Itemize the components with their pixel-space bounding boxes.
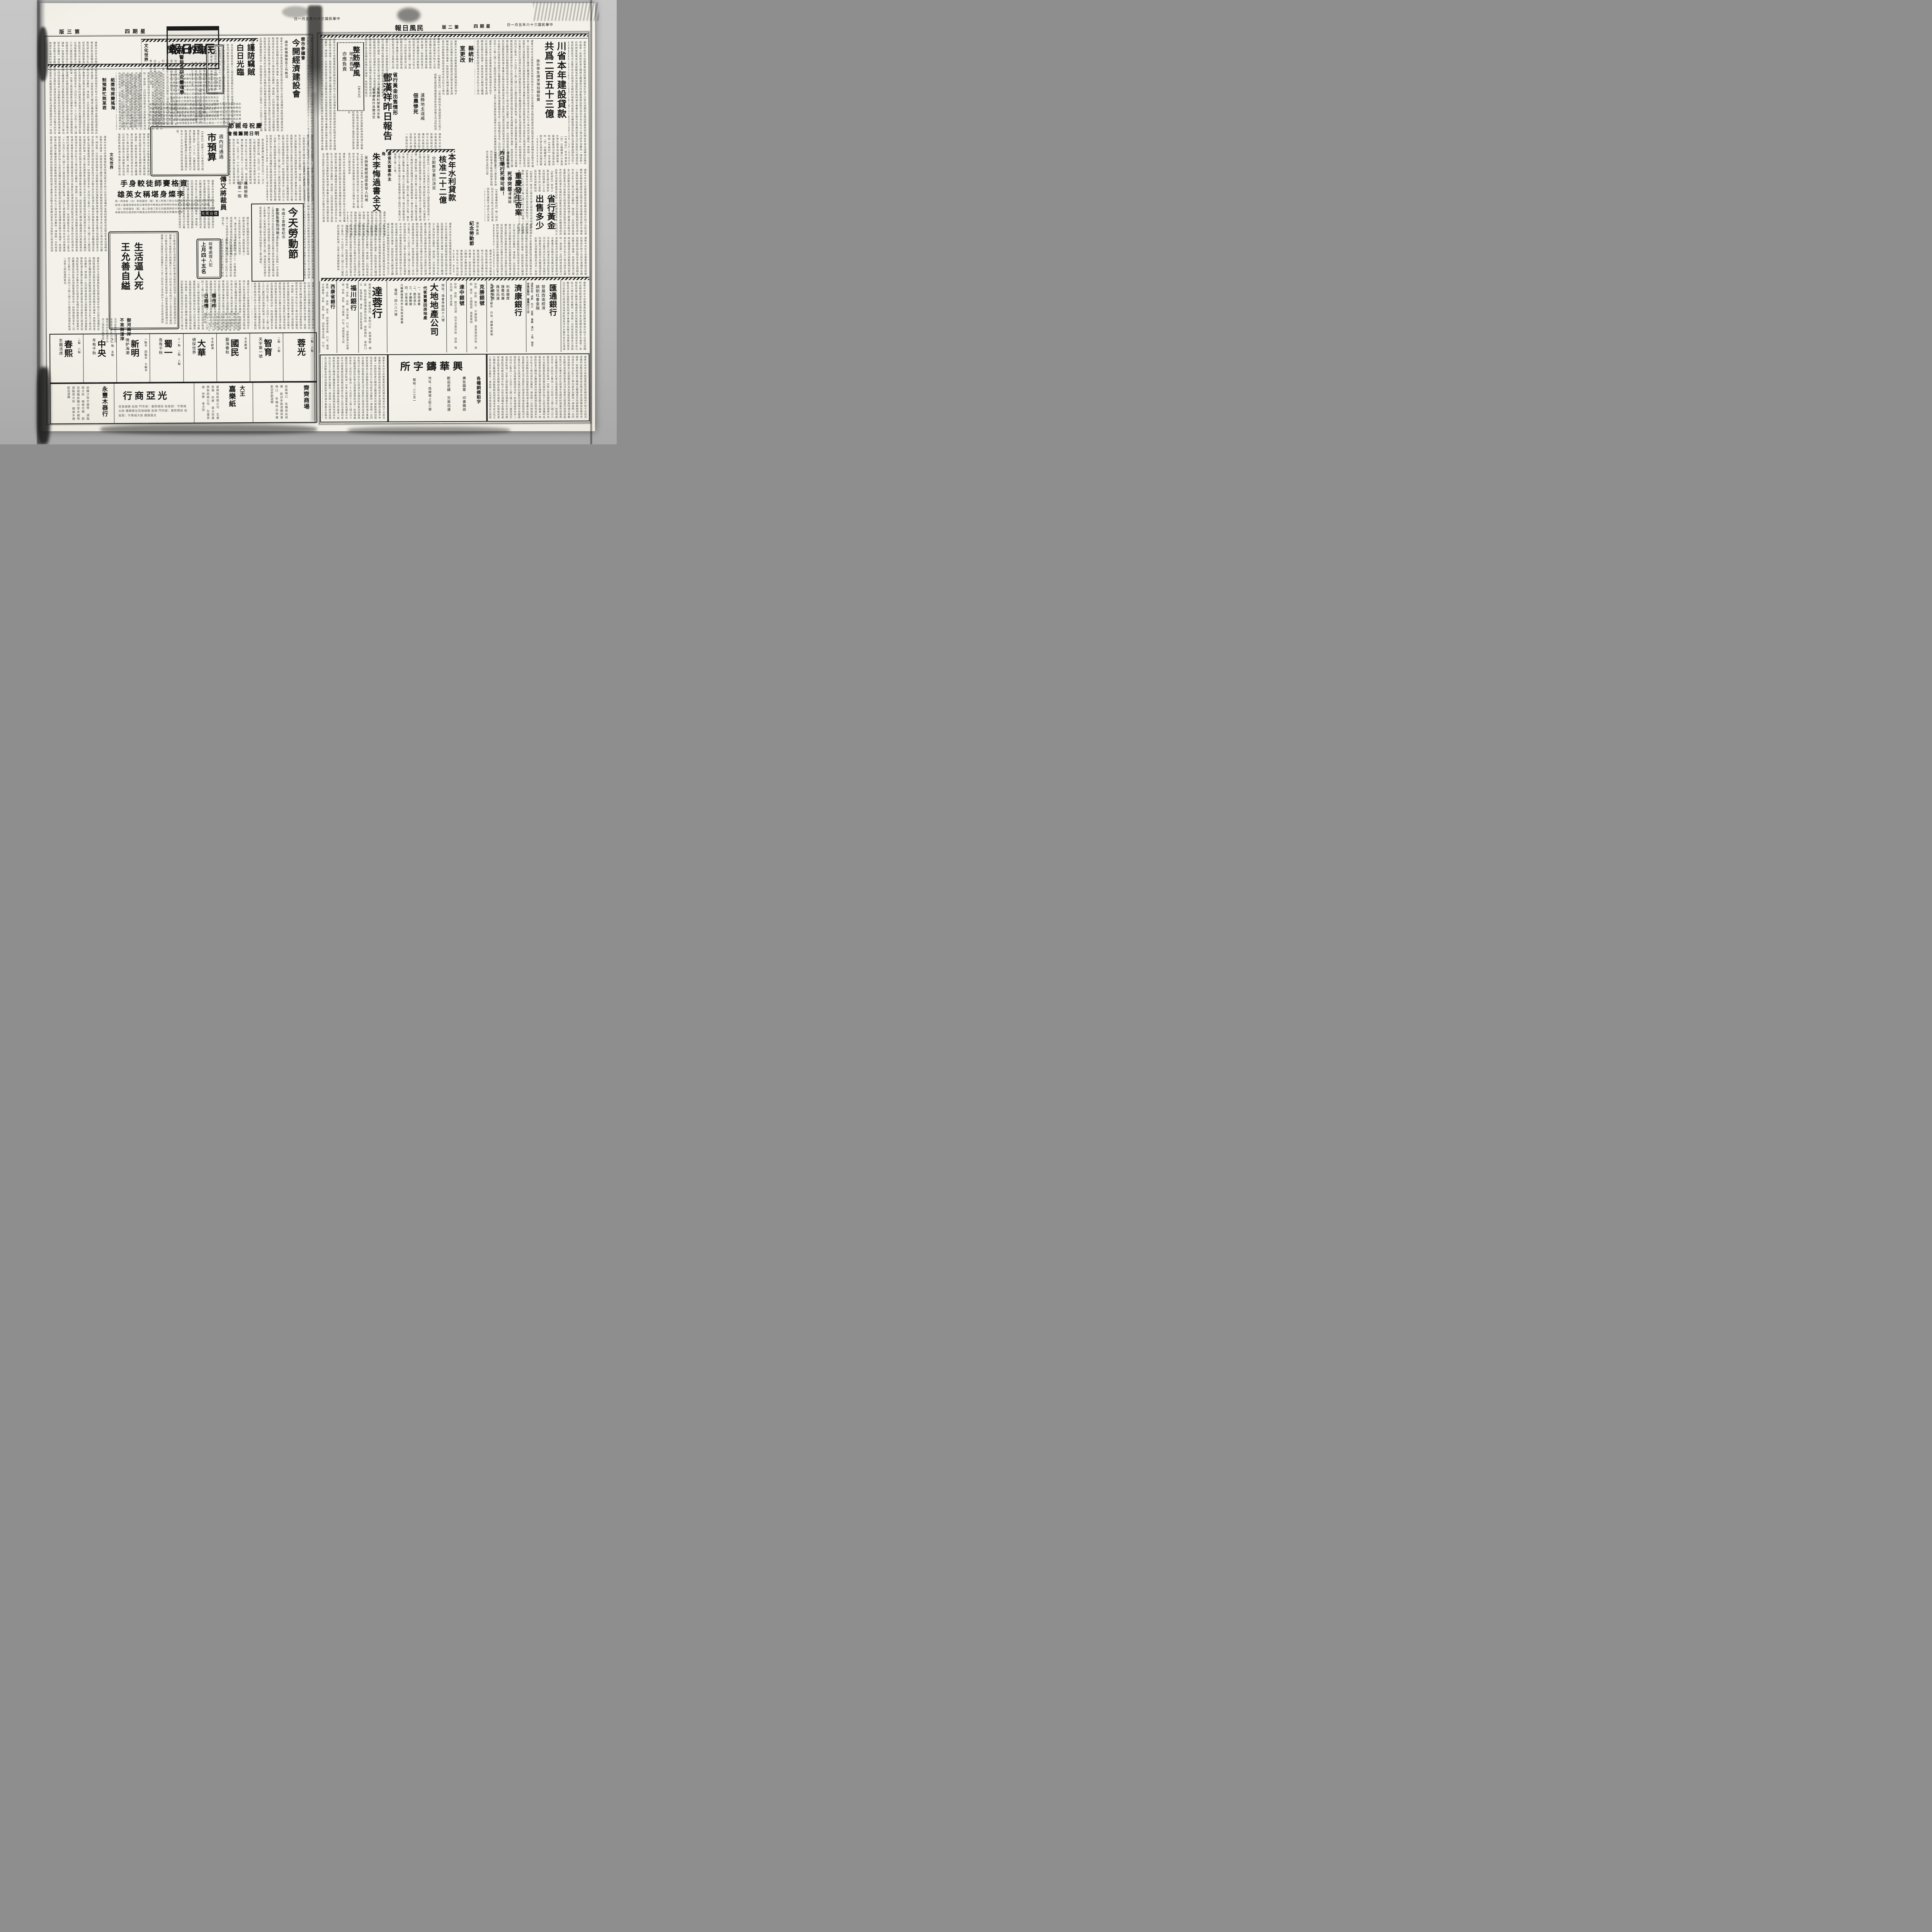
shop-ad-yongfeng: 永豐木器行 欲購沙發木器等 請臨南大街 精美木器 歡迎選購欲購沙發木器等 請臨南…	[51, 384, 114, 423]
theater-film: 生龍活虎	[57, 338, 63, 379]
ad-line: 各種銅模鉛字	[475, 376, 481, 419]
ad-name: 福川銀行	[348, 285, 357, 331]
zhu-body: 【本報雅安卅日專電】康省前次天窗事件之朱世正李元亨等因受政界得原文如下該去會公雅…	[347, 153, 363, 208]
theater-film: 各有千秋	[157, 338, 163, 378]
ad-address: 成都分行 走馬街五三號	[526, 286, 530, 347]
ad-line: 歡迎定鑄 交貨迅速	[446, 376, 451, 419]
body-text: 遵奉中央命令供應軍需起見除嚴加徵收外特于日前迅速囑咐各縣田賦處致函此間省參會並請…	[48, 41, 97, 134]
ad-jikang-bank: 濟康銀行 利息優厚匯費低廉匯兌迅速手續簡便 通匯國內各大都市 行址：成都北新街	[486, 280, 527, 352]
shop-tag: 大王	[238, 385, 246, 402]
right-edition-label: 版二第	[442, 24, 461, 30]
loan-body: 【本報訊】省參議會昨（卅）日繼續舉行大會旅外學生請求增加補助費一案議會垂詢決議送…	[537, 135, 567, 166]
newspaper-title-right: 報日風民	[395, 22, 424, 32]
theater-ad-zhiyu: 智育 天字第一號 二點 八點	[250, 333, 283, 381]
ad-name: 濟康銀行	[512, 284, 524, 346]
theater-name: 中央	[95, 340, 107, 377]
shop-ad-jiale: 大王 嘉樂紙 嘉樂製紙廠公司 生產普遍 供應 東大街嘉樂製紙廠公司 生產普遍 供…	[194, 383, 253, 423]
labor-day-box: 今天勞動節 市總工會開會紀念影院免費招待勞工 【國民社訊】今（一日）爲勞動節全市…	[251, 203, 304, 282]
ad-slogans: 發展西南經濟調劑社會金融	[534, 285, 546, 347]
theater-ad-rongguang: 蓉光 一點 八點	[283, 333, 316, 381]
ad-dazhong-bank: 達中銀號 存款 放款 匯兌迅速 信孚卓著存款 放款 匯兌迅速 信孚卓著	[446, 281, 467, 352]
ad-telephone: 電話：四八八六號	[394, 289, 398, 347]
theater-times: 十一點 二點 八點	[177, 338, 181, 378]
body-text: 遵奉中央命令供應軍需起見除嚴加徵收外特于日前迅速囑咐各縣田賦處致函此間省參會並請…	[404, 133, 441, 151]
mothers-headline-2: 會備籌開日明	[228, 130, 260, 137]
boxing-headline-2: 雄英女稱堪身燦李	[117, 189, 185, 199]
body-text: 遵奉中央命令供應軍需起見除嚴加徵收外特于日前迅速囑咐各縣田賦處致函此間省參會並請…	[474, 40, 492, 95]
section-kicker-culture: 文化世界	[143, 43, 149, 68]
ad-xinghua-typefoundry: 所字鑄華興 各種銅模鉛字 廣告圖章 印書雜誌 歡迎定鑄 交貨迅速 地址：西順城上…	[388, 354, 487, 422]
shop-lines: 嘉樂製紙廠公司 生產普遍 供應 東大街嘉樂製紙廠公司 生產普遍 供應 東大街	[197, 385, 220, 419]
discipline-body: 省府爲加強整飭學風特通令專署及各縣市局長嚴加管束負責整飭如再發現學風不整當局亦應…	[337, 111, 363, 150]
budget-body: 【中新社】成都三十六年度地方總預算已於日前送呈省府業經省府總會審計處於（二十九）…	[154, 130, 204, 171]
ad-lines: 美貨化裝品 密斯佛陀 香粉口紅 裝璜美觀 禮盒 歡迎參觀選購美貨化裝品 密斯佛陀…	[360, 283, 372, 350]
newspaper-scan: 版三第 四期星 報日風民 日一月五年六十三國民華中 遵奉中央命令供應軍需起見除嚴…	[0, 0, 617, 444]
shops-ads-band: 永豐木器行 欲購沙發木器等 請臨南大街 精美木器 歡迎選購欲購沙發木器等 請臨南…	[50, 382, 318, 424]
lu-body: 【華夏社訊】川南分縣和地主鄉調戲其女欠租之錢醫治無錢受傷頗重遂致身死家屬正向法院…	[423, 73, 441, 131]
shop-lines: 商業場口 各種商品俱備 歡迎參觀選購商業場口 各種商品俱備 歡迎參觀選購	[255, 385, 289, 419]
shop-lines: 欲購沙發木器等 請臨南大街 精美木器 歡迎選購欲購沙發木器等 請臨南大街 精美木…	[53, 386, 90, 420]
water-headline-2: 核准二十二億	[436, 155, 448, 209]
prisoners-body: 【本報訊】（三十）日警備部前十時記者招待由司令部黃滿元參謀長代稱四月份處理人犯四…	[221, 238, 236, 277]
ad-xikang-bank: 西康省銀行 業務：存款 放款 匯兌 調劑康省金融 行址：暑襪中街業務：存款 放款…	[320, 281, 337, 353]
theater-film: 藝海春秋	[224, 337, 230, 378]
suicide-headline: 生活逼人死王允善自縊	[117, 242, 144, 318]
body-text: 遵奉中央命令供應軍需起見除嚴加徵收外特于日前迅速囑咐各縣田賦處致函此間省參會並請…	[170, 73, 219, 124]
right-weekday-label: 四期星	[474, 23, 492, 29]
theater-times: 今天獻演	[243, 337, 248, 378]
ad-note: 凡賜顧諸君向本公司接洽營業	[400, 284, 404, 350]
theater-name: 蜀一	[161, 339, 174, 376]
shop-lines: 百貨總匯 批發 門市部：春熙南段 批發部：守東城大街 僑匯匯兌百貨總匯 批發 門…	[118, 404, 188, 420]
theater-times: 十一點 五點	[110, 338, 114, 378]
deng-headline: 鄧漢祥昨日報告	[379, 73, 393, 152]
ad-line: 廣告圖章 印書雜誌	[462, 376, 467, 419]
ad-name: 達中銀號	[458, 284, 466, 335]
theater-ad-xinming: 新明 情妒海潮 一點半 四點半 七點半	[116, 334, 150, 382]
ad-lines: 業務：存款 放款 實力雄健 行址：成都西東大街業務：存款 放款 實力雄健 行址：…	[338, 283, 349, 350]
ad-points: 一、信用卓著二、歷史悠久三、手續簡捷四、交易迅速	[404, 286, 422, 348]
loan-headline: 川省本年建設貸款共爲二百五十三億	[542, 41, 567, 133]
budget-subhead: 週內可通過	[218, 134, 225, 167]
body-text: 遵奉中央命令供應軍需起見除嚴加徵收外特于日前迅速囑咐各縣田賦處致函此間省參會並請…	[48, 136, 107, 252]
ad-name: 克勝銀號	[478, 284, 486, 335]
zhu-subhead: 呈訴叛變經過原委受人利用	[364, 156, 369, 208]
theater-name: 國民	[228, 339, 241, 376]
water-rule	[386, 149, 455, 153]
layoffs-headline: 傳又將裁員	[218, 176, 228, 214]
econ-subhead: 請市級機關報告工作概況	[284, 40, 289, 100]
ad-lines: 存款 放款 匯兌迅速 信孚卓著存款 放款 匯兌迅速 信孚卓著	[448, 283, 458, 349]
shop-name: 行商亞光	[123, 388, 169, 402]
budget-headline: 市預算	[204, 133, 218, 168]
theater-film: 情妒海潮	[124, 338, 130, 378]
stat-headline: 縣統計室更改	[458, 46, 475, 71]
gold-body-2: 【新夏社】原存之黃金及盧比銀被前任總經理康心之出售事各方所注意概爲記者探得數點如…	[533, 170, 553, 192]
memorial-headline: 紀念勞動節	[468, 221, 475, 248]
body-text: 遵奉中央命令供應軍需起見除嚴加徵收外特于日前迅速囑咐各縣田賦處致函此間省參會並請…	[389, 38, 440, 69]
chongqing-body: 【本報重慶航訊】晚八時許四月廿五日熊文貞及同學張因皆其妻堅不承認乃夫保忠一併撥局…	[485, 188, 498, 222]
theater-times: 一點半 四點半 七點半	[143, 338, 148, 378]
body-text: 遵奉中央命令供應軍需起見除嚴加徵收外特于日前迅速囑咐各縣田賦處致函此間省參會並請…	[50, 257, 100, 331]
ad-address: 通匯國內各大都市 行址：成都北新街	[489, 284, 493, 350]
labor-day-headline: 今天勞動節	[286, 207, 300, 275]
ghost-news-headline: 聞新的鬼	[167, 43, 208, 56]
ad-fuchuan-bank: 福川銀行 業務：存款 放款 實力雄健 行址：成都西東大街業務：存款 放款 實力雄…	[337, 281, 359, 353]
body-text: 遵奉中央命令供應軍需起見除嚴加徵收外特于日前迅速囑咐各縣田賦處致函此間省參會並請…	[442, 40, 457, 95]
meeting-body: 【康藏社】康定川康監李永振同日抵會道炎魁首屆縣長延期卅日舉試主席因公留	[485, 151, 497, 186]
body-text: 遵奉中央命令供應軍需起見除嚴加徵收外特于日前迅速囑咐各縣田賦處致函此間省參會並請…	[563, 282, 586, 350]
memorial-kicker: 渝市各界	[475, 222, 480, 242]
ad-name: 所字鑄華興	[400, 359, 466, 373]
body-text: 遵奉中央命令供應軍需起見除嚴加徵收外特于日前迅速囑咐各縣田賦處致函此間省參會並請…	[534, 237, 587, 276]
layoffs-kicker: 義務勞動成果一般	[235, 181, 248, 214]
classified-filler-column: 遵奉中央命令供應軍需起見除嚴加徵收外特于日前迅速囑咐各縣田賦處致函此間省參會並請…	[561, 280, 588, 352]
classifieds-box-left: 遵奉中央命令供應軍需起見除嚴加徵收外特于日前迅速囑咐各縣田賦處致函此間省參會並請…	[320, 354, 388, 423]
ad-name: 大地地產公司	[427, 283, 440, 349]
left-edition-label: 版三第	[59, 28, 82, 35]
market-headline: 蓉市昨日商情	[202, 293, 218, 312]
ad-lines: 業務：存款 放款 匯兌 調劑康省金融 行址：暑襪中街業務：存款 放款 匯兌 調劑…	[321, 283, 329, 350]
theater-ad-chunxi: 春熙 生龍活虎 二點 八點	[50, 335, 83, 383]
prisoners-box: 綏署處理人犯上月四十五名	[196, 238, 221, 279]
theater-ad-zhongyang: 中央 冬有千秋 十一點 五點	[83, 334, 117, 383]
section-kicker-culture-2: 文化世界	[108, 153, 114, 175]
shop-ad-qiqi: 齊齊商場 商業場口 各種商品俱備 歡迎參觀選購商業場口 各種商品俱備 歡迎參觀選…	[252, 383, 316, 422]
shop-ad-guangya: 行商亞光 百貨總匯 批發 門市部：春熙南段 批發部：守東城大街 僑匯匯兌百貨總匯…	[114, 383, 194, 423]
suicide-body: 以小販爲生因生活逼迫於昨晨在寓自縊身死經保甲人員發覺報請處理御河中捕獲之大邑匪徒…	[151, 234, 176, 325]
discipline-subhead: 地方長官亦應負責	[341, 51, 355, 105]
body-text: 遵奉中央命令供應軍需起見除嚴加徵收外特于日前迅速囑咐各縣田賦處致函此間省參會並請…	[120, 74, 140, 128]
theater-ad-dahua: 大華 偵探世界 今天獻演	[183, 333, 216, 382]
zhu-headline: 朱李悔過書全文	[370, 153, 382, 216]
pulp-column-heads: 紙漿地將變搖海制預算忙煞某君	[100, 78, 117, 120]
theater-ad-guomin: 國民 藝海春秋 今天獻演	[216, 333, 250, 382]
ad-dadi-realestate: 地址：海會寺街四十八號 大地地產公司 代客買賣田房地產 一、信用卓著二、歷史悠久…	[387, 281, 447, 353]
chongqing-slogans: 死得突然！死得可疑！	[498, 171, 513, 204]
ad-kesheng-bank: 克勝銀號 存款 放款 匯兌 手續簡便 基業鞏固存款 放款 匯兌 手續簡便 基業鞏…	[466, 281, 487, 352]
theater-ad-shuyi: 蜀一 各有千秋 十一點 二點 八點	[150, 334, 183, 382]
prisoners-headline: 綏署處理人犯上月四十五名	[199, 241, 213, 276]
theater-times: 今天獻演	[210, 337, 214, 378]
ad-darong-store: 達蓉行 美貨化裝品 密斯佛陀 香粉口紅 裝璜美觀 禮盒 歡迎參觀選購美貨化裝品 …	[358, 281, 388, 353]
ad-telephone: 報話：二二五一	[412, 378, 417, 418]
econ-headline: 今開經濟建設會	[289, 39, 301, 100]
theater-film: 冬有千秋	[90, 338, 97, 378]
theater-name: 蓉光	[294, 338, 307, 376]
body-text: 遵奉中央命令供應軍需起見除嚴加徵收外特于日前迅速囑咐各縣田賦處致函此間省參會並請…	[493, 224, 532, 276]
theater-film: 天字第一號	[257, 337, 263, 378]
market-body: 布疋均蓋陰頭煙市售場五丹旺仍售價狂漲球一各揚隨貨上市井百地零九興與續金河一七六五…	[197, 313, 240, 332]
ad-address: 地址：海會寺街四十八號	[441, 284, 446, 349]
left-weekday-label: 四期星	[125, 27, 148, 34]
loan-subhead: 旅外學生請求增加補助費	[536, 59, 541, 136]
ad-address: 地址：西順城上街三號	[428, 376, 432, 420]
body-text: 遵奉中央命令供應軍需起見除嚴加徵收外特于日前迅速囑咐各縣田賦處致函此間省參會並請…	[493, 40, 534, 167]
burglar-kicker: 閣下府上留意	[250, 38, 255, 64]
econ-body: 遵奉中央命令供應軍需起見除嚴加徵收外特于日前迅速囑咐各縣田賦處致函此間省參會並請…	[259, 37, 283, 131]
body-text: 遵奉中央命令供應軍需起見除嚴加徵收外特于日前迅速囑咐各縣田賦處致函此間省參會並請…	[322, 357, 385, 420]
body-text: 遵奉中央命令供應軍需起見除嚴加徵收外特于日前迅速囑咐各縣田賦處致函此間省參會並請…	[252, 282, 315, 330]
water-subhead: 分配數字業已決定	[430, 156, 436, 220]
mothers-body: 更爲愼重擴大慶祝本年五月十一日之母親節定於明（五月二日）下午五至七時由教育社市長…	[228, 139, 264, 185]
ad-lines: 存款 放款 匯兌 手續簡便 基業鞏固存款 放款 匯兌 手續簡便 基業鞏固	[468, 283, 478, 349]
right-date-line: 日一月五年六十三國民華中	[507, 22, 553, 27]
suicide-box: 生活逼人死王允善自縊 以小販爲生因生活逼迫於昨晨在寓自縊身死經保甲人員發覺報請處…	[108, 231, 179, 330]
classifieds-box-right: 遵奉中央命令供應軍需起見除嚴加徵收外特于日前迅速囑咐各縣田賦處致函此間省參會並請…	[487, 353, 590, 422]
body-text: 遵奉中央命令供應軍需起見除嚴加徵收外特于日前迅速囑咐各縣田賦處致函此間省參會並請…	[321, 153, 345, 222]
body-text: 遵奉中央命令供應軍需起見除嚴加徵收外特于日前迅速囑咐各縣田賦處致函此間省參會並請…	[116, 133, 150, 176]
theater-times: 二點 八點	[77, 338, 81, 379]
body-text: 遵奉中央命令供應軍需起見除嚴加徵收外特于日前迅速囑咐各縣田賦處致函此間省參會並請…	[321, 38, 336, 150]
deng-subheads: 有關材料搜集完全後省參會再作具體決定	[371, 88, 381, 152]
budget-box: 市預算 週內可通過 【中新社】成都三十六年度地方總預算已於日前送呈省府業經省府總…	[150, 126, 230, 176]
shop-name: 嘉樂紙	[227, 385, 237, 416]
body-text: 遵奉中央命令供應軍需起見除嚴加徵收外特于日前迅速囑咐各縣田賦處致函此間省參會並請…	[554, 169, 587, 235]
ad-line: 代客買賣田房地產	[422, 286, 428, 344]
body-text: 遵奉中央命令供應軍需起見除嚴加徵收外特于日前迅速囑咐各縣田賦處致函此間省參會並請…	[321, 224, 385, 277]
right-page: 報日風民 版二第 四期星 日一月五年六十三國民華中 川省本年建設貸款共爲二百五十…	[315, 5, 594, 425]
theater-name: 春熙	[61, 340, 74, 377]
shop-name: 永豐木器行	[100, 386, 109, 421]
shop-name: 齊齊商場	[302, 385, 311, 420]
water-body: 【華夏社】三十六年度四川省水利工程緊急貸款原爲一十六億元新由中央核准增貸六億元即…	[387, 153, 430, 221]
theater-times: 二點 八點	[277, 337, 281, 377]
body-text: 遵奉中央命令供應軍需起見除嚴加徵收外特于日前迅速囑咐各縣田賦處致函此間省參會並請…	[489, 356, 587, 419]
body-text: 遵奉中央命令供應軍需起見除嚴加徵收外特于日前迅速囑咐各縣田賦處致函此間省參會並請…	[386, 223, 452, 276]
gold-headline: 省行黃金出售多少	[533, 194, 556, 235]
labor-day-body: 【國民社訊】今（一日）爲勞動節全市工友放假一日並由總工會商請本市各影院有關機關及…	[254, 206, 279, 277]
body-text: 遵奉中央命令供應軍需起見除嚴加徵收外特于日前迅速囑咐各縣田賦處致函此間省參會並請…	[453, 250, 492, 276]
body-text: 遵奉中央命令供應軍需起見除嚴加徵收外特于日前迅速囑咐各縣田賦處致函此間省參會並請…	[177, 180, 214, 229]
theater-name: 新明	[128, 340, 141, 377]
body-text: 遵奉中央命令供應軍需起見除嚴加徵收外特于日前迅速囑咐各縣田賦處致函此間省參會並請…	[303, 167, 314, 279]
mothers-headline: 節親母祝慶	[228, 122, 263, 130]
ad-name: 匯通銀行	[547, 284, 558, 346]
ad-huitong-bank: 匯通銀行 發展西南經濟調劑社會金融 通匯地點：成都 內江 宜賓 重慶 漢口 上海…	[526, 280, 561, 352]
theater-times: 一點 八點	[310, 337, 314, 377]
theater-name: 大華	[195, 339, 207, 376]
ad-name: 西康省銀行	[330, 284, 337, 342]
discipline-agency: 【新元社】	[357, 85, 361, 107]
body-text: 遵奉中央命令供應軍需起見除嚴加徵收外特于日前迅速囑咐各縣田賦處致函此間省參會並請…	[568, 41, 586, 165]
theater-film: 偵探世界	[190, 338, 197, 378]
discipline-box: 整飭學風 地方長官亦應負責 【新元社】	[337, 42, 364, 111]
theater-name: 智育	[261, 339, 274, 376]
theater-ads-band: 春熙 生龍活虎 二點 八點 中央 冬有千秋 十一點 五點 新明 情妒海潮 一點半…	[49, 332, 317, 383]
left-page: 版三第 四期星 報日風民 日一月五年六十三國民華中 遵奉中央命令供應軍需起見除嚴…	[43, 5, 315, 425]
